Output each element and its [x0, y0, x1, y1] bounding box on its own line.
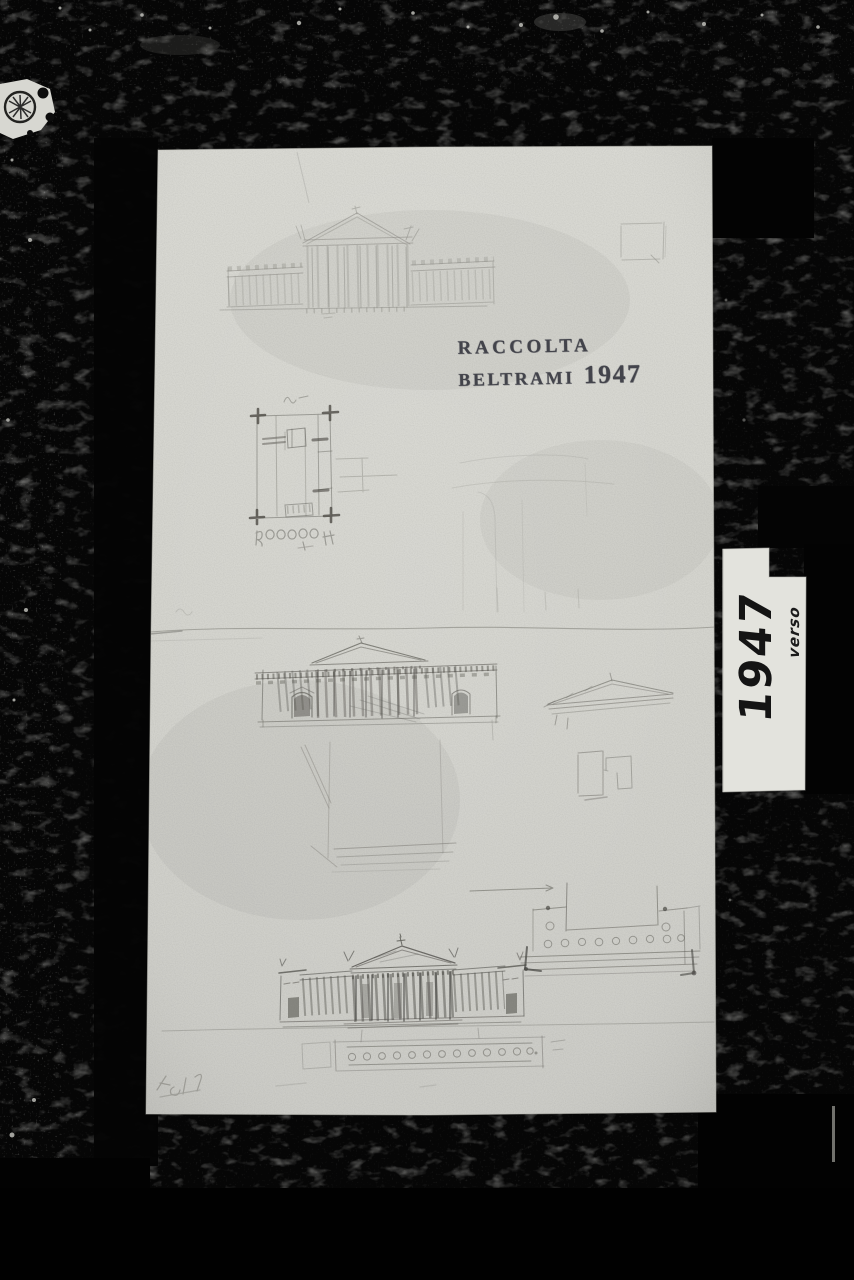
- archive-photograph: RACCOLTA BELTRAMI 1947 1947 verso: [0, 0, 854, 1280]
- photo-scene: [0, 0, 854, 1280]
- stamp-collection-word: RACCOLTA: [457, 334, 641, 360]
- collection-stamp: RACCOLTA BELTRAMI 1947: [457, 334, 641, 393]
- stamp-year: 1947: [583, 359, 642, 390]
- scratch-line: [832, 1106, 835, 1162]
- label-verso-handwriting: verso: [783, 588, 805, 675]
- label-year-handwriting: 1947: [732, 589, 782, 724]
- stamp-collection-name: BELTRAMI: [458, 367, 575, 390]
